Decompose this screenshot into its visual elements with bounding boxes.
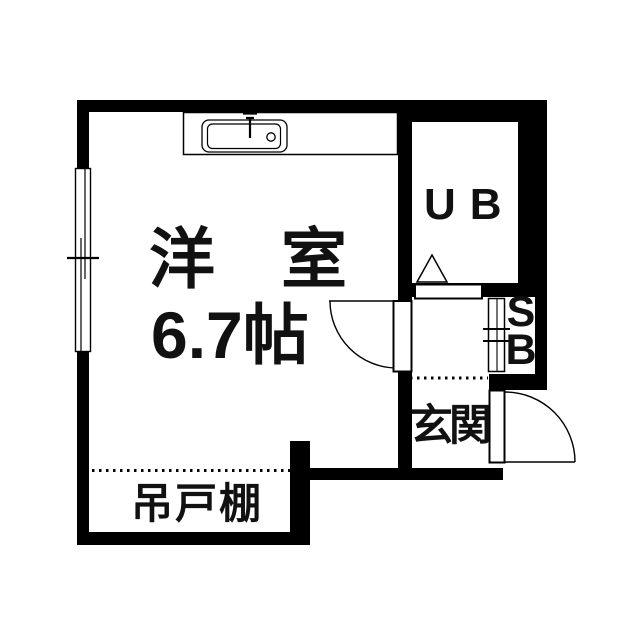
plan-linework: [0, 0, 640, 640]
unit-bath-door-triangle-icon: [417, 255, 447, 282]
room-door-swing-arc: [330, 301, 397, 368]
front-door-swing-arc: [505, 392, 575, 462]
room-door-leaf: [394, 301, 412, 372]
kitchen-counter: [184, 113, 398, 155]
unit-bath-door-threshold: [415, 285, 482, 299]
front-door-leaf: [490, 391, 505, 463]
front-door: [490, 391, 576, 463]
room-door: [329, 301, 412, 372]
main-room-label: 洋 室: [149, 225, 347, 294]
cupboard-label: 吊戸棚: [131, 482, 263, 526]
sink-drain-icon: [267, 133, 275, 141]
entrance-label: 玄関: [410, 404, 488, 449]
window-left: [67, 169, 99, 352]
shoe-box-label-line2: B: [502, 331, 540, 369]
floor-plan: 洋 室 6.7帖 UB S B 玄関 吊戸棚: [0, 0, 640, 640]
unit-bath-door: [415, 255, 482, 299]
main-room-size-label: 6.7帖: [151, 301, 309, 370]
unit-bath-label: UB: [424, 182, 516, 228]
shoe-box-label: S B: [502, 293, 540, 369]
